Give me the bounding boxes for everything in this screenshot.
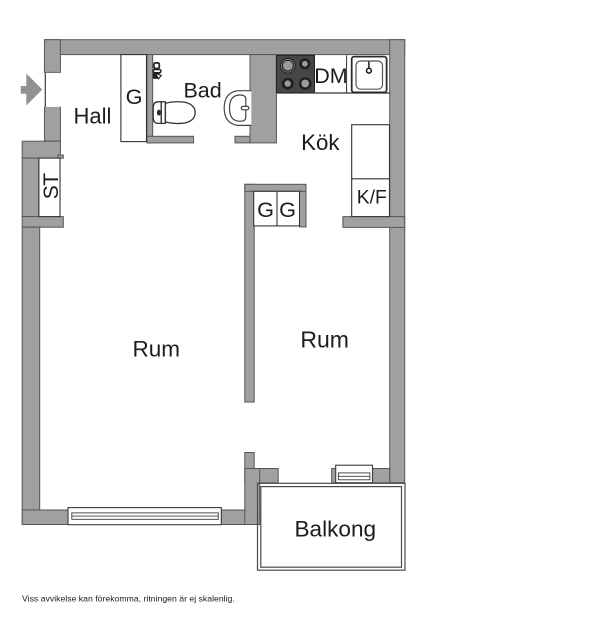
svg-text:G: G <box>257 197 274 222</box>
svg-text:G: G <box>279 197 296 222</box>
svg-text:Bad: Bad <box>183 79 221 103</box>
svg-text:Balkong: Balkong <box>294 517 376 542</box>
svg-text:ST: ST <box>40 173 63 200</box>
svg-text:Viss avvikelse kan förekomma,: Viss avvikelse kan förekomma, ritningen … <box>22 594 235 604</box>
svg-text:Hall: Hall <box>74 104 112 129</box>
svg-text:Rum: Rum <box>300 327 349 353</box>
svg-text:DM: DM <box>314 64 347 88</box>
svg-text:K/F: K/F <box>357 188 387 209</box>
svg-text:G: G <box>126 84 143 109</box>
svg-text:Rum: Rum <box>133 336 181 361</box>
svg-text:Kök: Kök <box>301 130 340 155</box>
